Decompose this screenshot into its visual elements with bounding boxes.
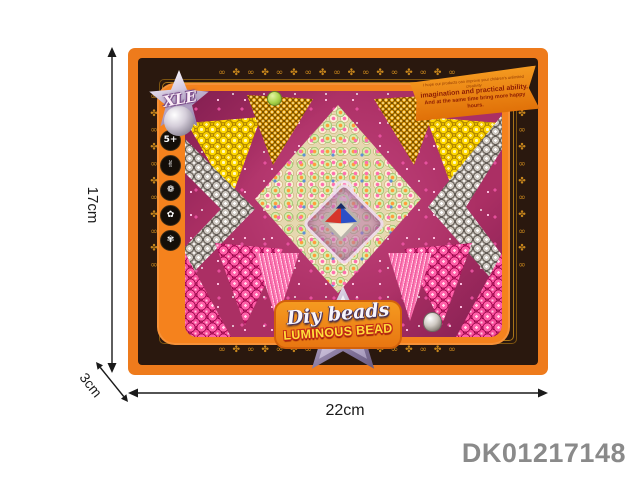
border-motif-right: ∞ ✤ ∞ ✤ ∞ ✤ ∞ ✤ ∞ ✤ ∞	[517, 92, 527, 331]
creativity-icon: ✿	[160, 205, 181, 226]
feature-icon-strip: 5+ ✌ ❁ ✿ ✾	[160, 130, 181, 251]
width-dimension-arrow	[127, 384, 549, 402]
product-logo-plate: Diy beads LUMINOUS BEAD	[274, 300, 402, 349]
green-bead-charm	[267, 91, 282, 106]
height-dimension-arrow	[102, 46, 122, 374]
product-code: DK01217148	[430, 438, 626, 469]
height-dimension-label: 17cm	[83, 179, 101, 231]
hand-skill-icon: ✌	[160, 155, 181, 176]
brain-icon: ❁	[160, 180, 181, 201]
brand-star-logo: XLE	[146, 70, 212, 138]
silver-bell-charm	[423, 312, 442, 332]
product-photo: 17cm 3cm 22cm DK01217148 ∞ ✤ ∞ ✤ ∞ ✤ ∞ ✤…	[0, 0, 640, 480]
product-box: ∞ ✤ ∞ ✤ ∞ ✤ ∞ ✤ ∞ ✤ ∞ ✤ ∞ ✤ ∞ ✤ ∞ ∞ ✤ ∞ …	[128, 48, 548, 375]
width-dimension-label: 22cm	[312, 402, 378, 420]
sparkle-hand-icon: ✾	[160, 230, 181, 251]
brand-gem	[164, 106, 194, 136]
